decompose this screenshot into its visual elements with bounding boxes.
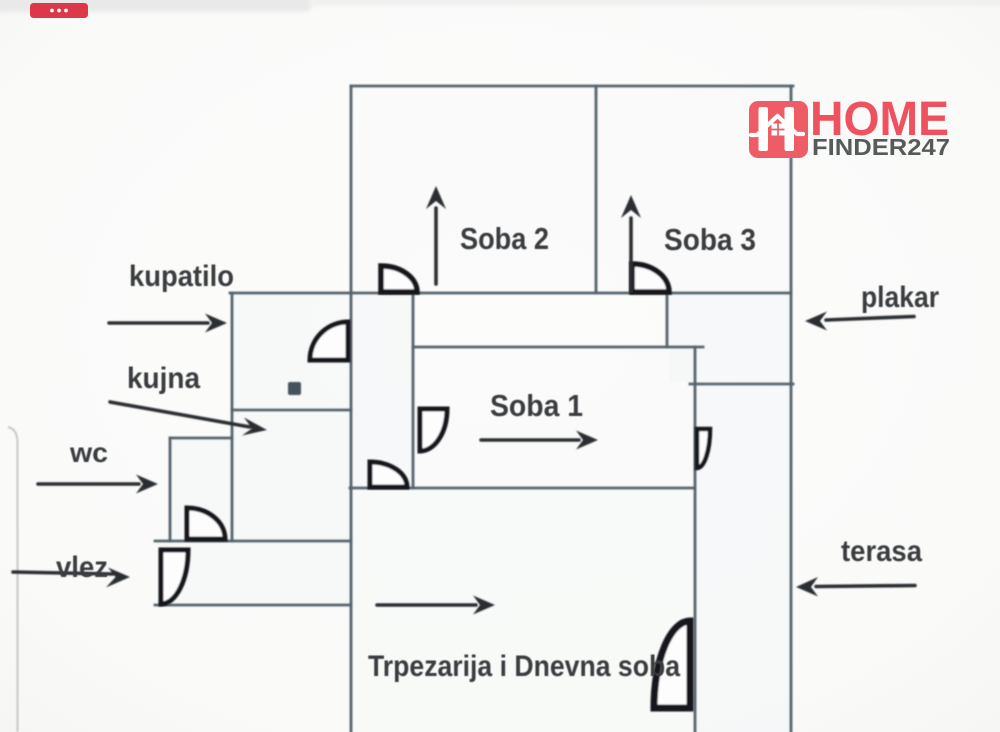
svg-text:plakar: plakar [861,281,939,314]
svg-text:wc: wc [69,437,108,468]
svg-text:Soba 1: Soba 1 [490,388,583,423]
svg-text:vlez: vlez [56,551,108,584]
svg-text:kujna: kujna [127,362,200,395]
svg-text:Soba 3: Soba 3 [664,222,756,257]
svg-text:Trpezarija i Dnevna soba: Trpezarija i Dnevna soba [368,650,680,683]
svg-text:kupatilo: kupatilo [129,260,234,293]
svg-text:terasa: terasa [841,535,922,568]
svg-text:Soba 2: Soba 2 [460,221,549,256]
svg-text:FINDER247: FINDER247 [812,134,950,160]
